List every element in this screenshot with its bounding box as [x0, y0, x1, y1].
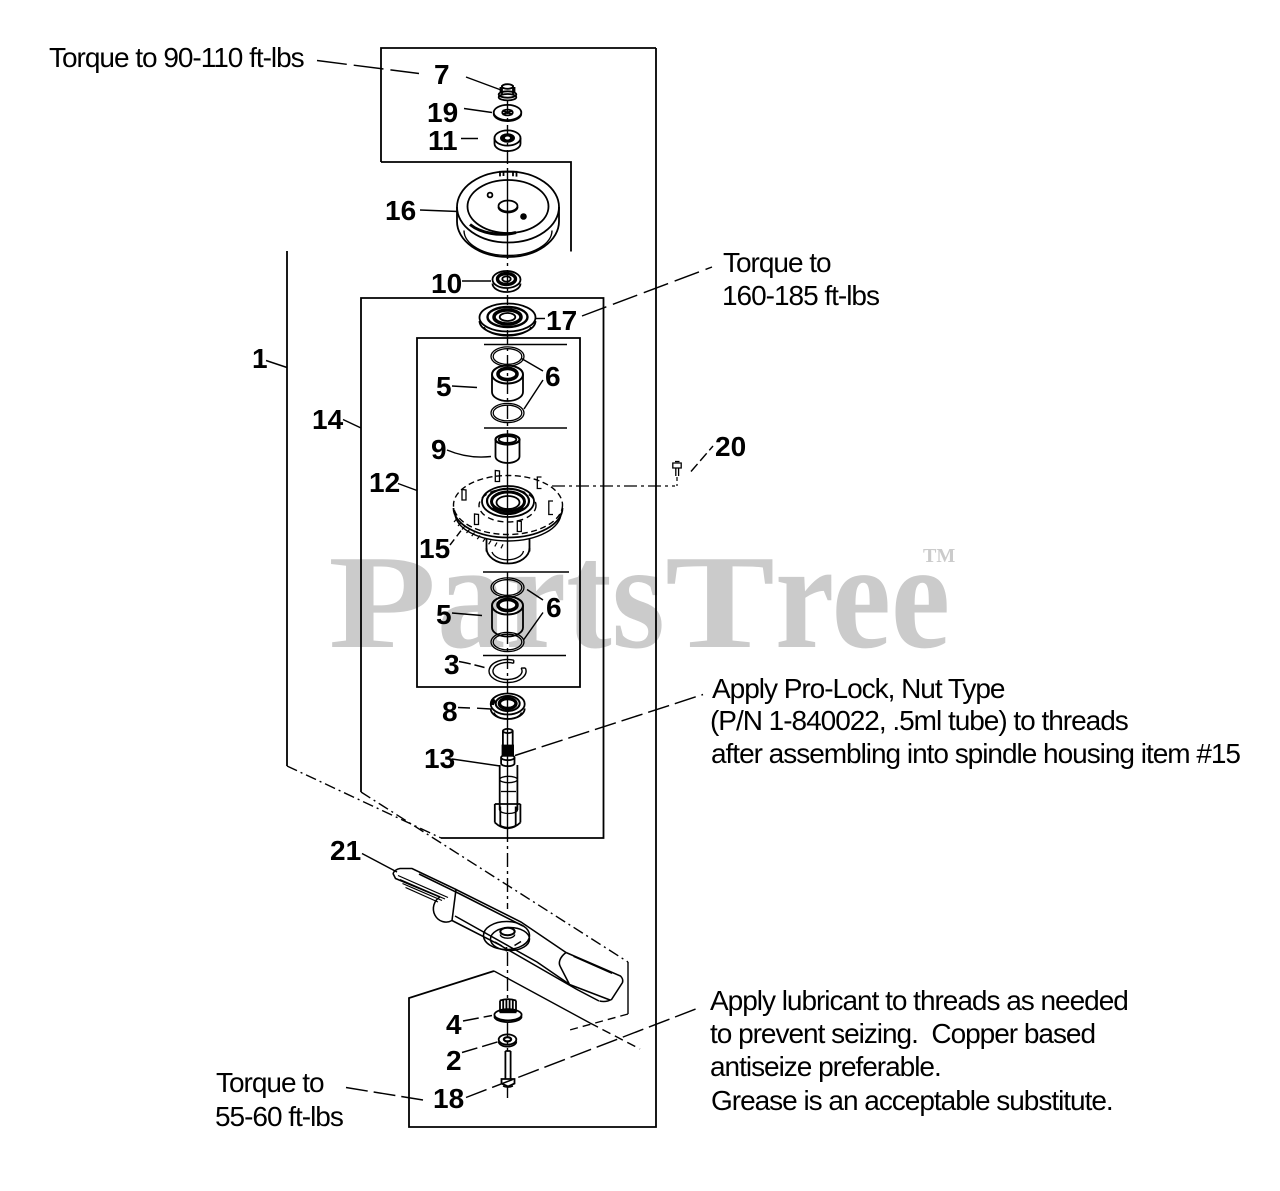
svg-text:8: 8: [442, 696, 458, 727]
svg-text:19: 19: [427, 97, 458, 128]
svg-text:11: 11: [428, 125, 458, 156]
svg-text:4: 4: [446, 1009, 462, 1040]
svg-text:to prevent seizing. Copper ba: to prevent seizing. Copper based: [710, 1018, 1095, 1049]
svg-text:antiseize preferable.: antiseize preferable.: [710, 1051, 941, 1082]
svg-text:after assembling into spindle: after assembling into spindle housing it…: [711, 738, 1240, 769]
svg-text:14: 14: [312, 404, 344, 435]
svg-text:Torque to: Torque to: [723, 247, 831, 278]
svg-text:160-185 ft-lbs: 160-185 ft-lbs: [722, 280, 879, 311]
svg-text:10: 10: [431, 268, 462, 299]
svg-text:Apply lubricant to threads as: Apply lubricant to threads as needed: [710, 985, 1128, 1016]
svg-text:Torque to 90-110 ft-lbs: Torque to 90-110 ft-lbs: [49, 42, 304, 73]
svg-text:(P/N 1-840022, .5ml tube) to t: (P/N 1-840022, .5ml tube) to threads: [710, 705, 1128, 736]
svg-text:18: 18: [433, 1083, 464, 1114]
svg-text:15: 15: [419, 533, 450, 564]
svg-text:7: 7: [434, 59, 450, 90]
svg-text:TM: TM: [923, 545, 955, 567]
svg-text:Grease is an acceptable substi: Grease is an acceptable substitute.: [711, 1085, 1113, 1116]
svg-text:21: 21: [330, 835, 361, 866]
svg-text:5: 5: [436, 599, 452, 630]
svg-text:13: 13: [424, 743, 455, 774]
svg-text:3: 3: [444, 649, 460, 680]
svg-text:ree: ree: [775, 512, 950, 681]
svg-text:Torque to: Torque to: [216, 1067, 324, 1098]
svg-text:Apply Pro-Lock, Nut Type: Apply Pro-Lock, Nut Type: [712, 673, 1005, 704]
svg-text:55-60 ft-lbs: 55-60 ft-lbs: [215, 1101, 343, 1132]
svg-text:20: 20: [715, 431, 746, 462]
svg-text:16: 16: [385, 195, 416, 226]
svg-text:6: 6: [546, 592, 562, 623]
svg-text:5: 5: [436, 371, 452, 402]
svg-text:6: 6: [545, 361, 561, 392]
svg-text:12: 12: [369, 467, 400, 498]
svg-text:9: 9: [431, 434, 447, 465]
svg-text:1: 1: [252, 343, 268, 374]
svg-text:T: T: [665, 528, 775, 676]
svg-text:17: 17: [546, 305, 577, 336]
svg-text:2: 2: [446, 1045, 462, 1076]
